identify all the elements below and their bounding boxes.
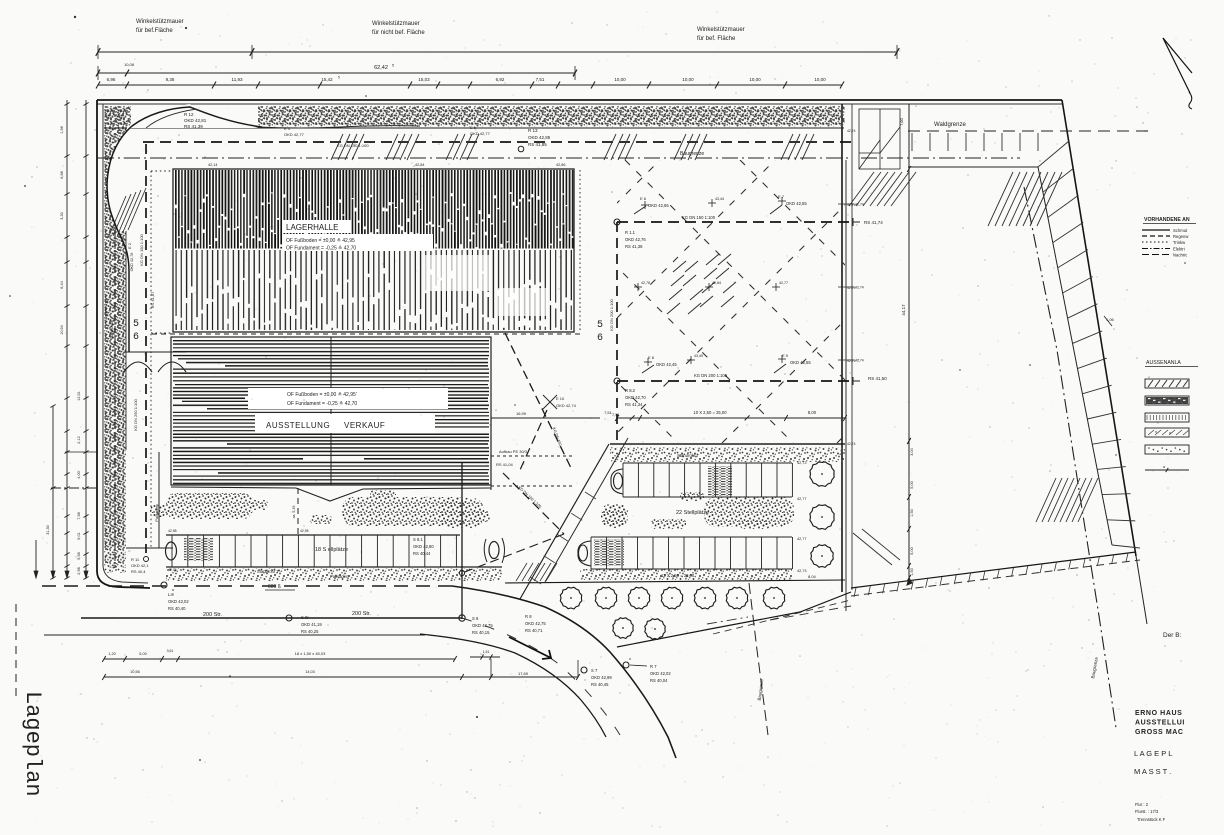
svg-text:OKD 42,74: OKD 42,74 <box>556 403 577 408</box>
svg-text:Palisaden: Palisaden <box>330 574 349 579</box>
svg-text:42,77: 42,77 <box>797 537 807 541</box>
svg-text:3,04: 3,04 <box>910 448 914 455</box>
svg-text:RS 41,38: RS 41,38 <box>625 244 643 249</box>
svg-text:10,00: 10,00 <box>749 77 761 82</box>
svg-text:RS 41,04: RS 41,04 <box>496 462 513 467</box>
svg-text:KG DN 150 1:100: KG DN 150 1:100 <box>139 233 144 265</box>
svg-text:E 2: E 2 <box>127 242 132 249</box>
svg-text:10,00: 10,00 <box>814 77 826 82</box>
svg-text:1,98: 1,98 <box>60 126 64 133</box>
svg-text:42,73: 42,73 <box>797 461 807 465</box>
svg-text:5: 5 <box>338 76 340 80</box>
svg-text:Anlieferung: Anlieferung <box>104 300 108 319</box>
svg-text:7,51: 7,51 <box>536 77 545 82</box>
svg-text:42,74: 42,74 <box>847 203 856 207</box>
svg-text:42,74: 42,74 <box>855 359 864 363</box>
svg-text:Winkelstützmauer: Winkelstützmauer <box>136 19 184 25</box>
svg-text:Trennstück K F: Trennstück K F <box>1137 817 1166 822</box>
svg-text:ca. 5,19: ca. 5,19 <box>292 506 296 519</box>
svg-text:1,20: 1,20 <box>108 652 115 656</box>
svg-text:Regenw: Regenw <box>1173 234 1189 239</box>
svg-text:2,12: 2,12 <box>77 436 81 443</box>
svg-text:S 9r: S 9r <box>301 615 309 620</box>
svg-text:RS 41,34: RS 41,34 <box>625 402 643 407</box>
svg-text:RS 40,25: RS 40,25 <box>301 629 319 634</box>
svg-text:R 11: R 11 <box>131 557 140 562</box>
svg-text:OKD 42,85: OKD 42,85 <box>528 135 551 140</box>
svg-text:8,04: 8,04 <box>808 574 817 579</box>
svg-text:M A S S T .: M A S S T . <box>1134 767 1171 776</box>
svg-text:OF Fundament = -0,25 ≙ 42,70: OF Fundament = -0,25 ≙ 42,70 <box>287 400 357 407</box>
svg-text:44,17: 44,17 <box>901 304 906 316</box>
svg-text:5,00: 5,00 <box>910 547 914 554</box>
svg-text:1,51: 1,51 <box>483 650 490 654</box>
svg-text:62,42: 62,42 <box>374 65 388 71</box>
svg-text:5,00: 5,00 <box>910 481 914 488</box>
svg-text:5: 5 <box>392 64 394 68</box>
svg-text:S 8: S 8 <box>472 616 479 621</box>
svg-text:10 X 2,50 = 25,00: 10 X 2,50 = 25,00 <box>693 410 727 415</box>
svg-text:5,98: 5,98 <box>77 552 81 559</box>
svg-text:LAGERHALLE: LAGERHALLE <box>286 223 338 232</box>
svg-text:Trinkw: Trinkw <box>1173 240 1186 245</box>
svg-text:200 Str.: 200 Str. <box>203 612 222 618</box>
svg-text:5,00: 5,00 <box>139 652 146 656</box>
svg-text:42,74: 42,74 <box>847 359 856 363</box>
svg-text:Flurst. : 17/3: Flurst. : 17/3 <box>1135 809 1159 814</box>
svg-text:R 13: R 13 <box>528 128 538 133</box>
svg-text:10,56: 10,56 <box>130 670 140 674</box>
svg-text:für bef. Fläche: für bef. Fläche <box>697 36 736 42</box>
svg-text:42,86: 42,86 <box>556 163 566 167</box>
svg-text:R 12: R 12 <box>184 112 194 117</box>
svg-text:OKD 42,1: OKD 42,1 <box>131 563 149 568</box>
svg-text:RS 41,39: RS 41,39 <box>184 124 203 129</box>
svg-text:OKD 42,81: OKD 42,81 <box>184 118 207 123</box>
svg-text:10,08: 10,08 <box>124 62 135 67</box>
svg-text:KG DN 200 1:100: KG DN 200 1:100 <box>694 373 728 378</box>
svg-text:OKD 42,65: OKD 42,65 <box>648 203 669 208</box>
svg-text:ERNO HAUS: ERNO HAUS <box>1135 710 1182 717</box>
svg-text:Nachric: Nachric <box>1173 252 1187 257</box>
svg-text:2,98: 2,98 <box>77 567 81 574</box>
svg-text:OKD 42,75: OKD 42,75 <box>525 621 546 626</box>
svg-text:KG DN 250 1:100: KG DN 250 1:100 <box>133 398 138 430</box>
svg-text:KG DN 150 1:100: KG DN 150 1:100 <box>337 143 369 148</box>
svg-text:42,78: 42,78 <box>168 568 177 572</box>
svg-text:43,44: 43,44 <box>715 197 724 201</box>
svg-text:für nicht bef. Fläche: für nicht bef. Fläche <box>372 30 425 36</box>
svg-text:RS 40,4: RS 40,4 <box>131 569 146 574</box>
svg-text:E 7: E 7 <box>778 194 785 199</box>
svg-text:31,30: 31,30 <box>46 525 50 535</box>
svg-text:6,68: 6,68 <box>60 171 64 178</box>
svg-text:42,78: 42,78 <box>641 281 650 285</box>
svg-text:42,74: 42,74 <box>847 442 856 446</box>
svg-text:1,50: 1,50 <box>910 509 914 516</box>
svg-text:RS 41,50: RS 41,50 <box>868 376 887 381</box>
svg-text:Standrohr T: Standrohr T <box>257 569 279 574</box>
svg-text:OKD 41,19: OKD 41,19 <box>301 622 322 627</box>
svg-text:43,49: 43,49 <box>694 354 703 358</box>
svg-text:200 Str.: 200 Str. <box>352 611 371 617</box>
svg-text:L A G E P L: L A G E P L <box>1134 749 1172 758</box>
svg-text:10,94: 10,94 <box>60 325 64 335</box>
svg-text:für bef.Fläche: für bef.Fläche <box>136 28 173 34</box>
svg-text:Standsäule: Standsäule <box>110 321 114 340</box>
svg-text:OKD 42,02: OKD 42,02 <box>650 671 671 676</box>
svg-text:VORHANDENE AN: VORHANDENE AN <box>1144 217 1190 223</box>
svg-text:6: 6 <box>597 333 603 344</box>
svg-text:Standrohr T: Standrohr T <box>677 453 699 458</box>
svg-text:R 8: R 8 <box>525 614 532 619</box>
svg-text:42,84: 42,84 <box>415 163 425 167</box>
svg-text:OKD 42,70: OKD 42,70 <box>625 395 646 400</box>
svg-text:5: 5 <box>133 319 139 330</box>
svg-text:6,92: 6,92 <box>496 77 505 82</box>
svg-text:RS 40,45: RS 40,45 <box>591 682 609 687</box>
svg-text:OKD 42,76: OKD 42,76 <box>625 237 646 242</box>
svg-text:RS 40,15: RS 40,15 <box>472 630 490 635</box>
svg-text:RS 40,71: RS 40,71 <box>525 628 543 633</box>
svg-text:1,06: 1,06 <box>1106 317 1115 322</box>
svg-text:OKD 42,55: OKD 42,55 <box>786 201 807 206</box>
svg-text:GROSS MAC: GROSS MAC <box>1135 729 1184 736</box>
svg-text:OF Fundament = -0,25 ≙ 42,70: OF Fundament = -0,25 ≙ 42,70 <box>286 245 356 252</box>
svg-text:Der B:: Der B: <box>1163 632 1182 639</box>
svg-text:KG DN 150 1:100: KG DN 150 1:100 <box>682 215 716 220</box>
svg-text:OF Fußboden = ±0,00 ≙ 42,95': OF Fußboden = ±0,00 ≙ 42,95' <box>287 391 357 398</box>
svg-text:RS 41,74: RS 41,74 <box>864 220 883 225</box>
svg-text:R 7: R 7 <box>650 664 657 669</box>
svg-text:42,74: 42,74 <box>847 129 856 133</box>
svg-text:11,93: 11,93 <box>232 77 243 82</box>
svg-text:15,42: 15,42 <box>321 77 333 82</box>
svg-text:14,03: 14,03 <box>305 670 315 674</box>
svg-text:6,44: 6,44 <box>60 281 64 288</box>
svg-text:AUSSENANLA: AUSSENANLA <box>1146 360 1181 366</box>
svg-text:S 7: S 7 <box>591 668 598 673</box>
svg-text:OKD 42,80: OKD 42,80 <box>413 544 434 549</box>
svg-text:Lageplan: Lageplan <box>20 691 45 797</box>
svg-text:OKD 42,45: OKD 42,45 <box>656 362 677 367</box>
svg-text:4,00: 4,00 <box>77 471 81 478</box>
svg-text:1,50: 1,50 <box>910 568 914 575</box>
svg-text:OKD 42,76: OKD 42,76 <box>130 253 134 272</box>
svg-text:42,98: 42,98 <box>168 529 177 533</box>
svg-text:7,51: 7,51 <box>604 410 613 415</box>
svg-text:S 8.1: S 8.1 <box>413 537 423 542</box>
svg-text:15,03: 15,03 <box>418 77 430 82</box>
svg-text:42,77: 42,77 <box>797 497 807 501</box>
svg-text:600 ß: 600 ß <box>268 584 281 590</box>
svg-text:8,00: 8,00 <box>808 410 817 415</box>
svg-text:3,30: 3,30 <box>60 212 64 219</box>
svg-text:AUSSTELLUNG: AUSSTELLUNG <box>266 421 330 430</box>
svg-text:16,99: 16,99 <box>516 411 527 416</box>
svg-text:VERKAUF: VERKAUF <box>344 421 385 430</box>
svg-text:E 10: E 10 <box>556 396 565 401</box>
svg-text:7,98: 7,98 <box>77 512 81 519</box>
svg-text:RS 41,87: RS 41,87 <box>150 291 155 308</box>
svg-text:42,77: 42,77 <box>779 281 788 285</box>
svg-text:KG DN 200 1:100: KG DN 200 1:100 <box>609 298 614 330</box>
svg-text:E 9: E 9 <box>782 353 789 358</box>
svg-text:E 6: E 6 <box>640 196 647 201</box>
svg-text:Aufbau PE 30/3: Aufbau PE 30/3 <box>499 449 528 454</box>
svg-text:6,96: 6,96 <box>107 77 116 82</box>
svg-text:42,74: 42,74 <box>847 286 856 290</box>
svg-text:R 1.1: R 1.1 <box>625 230 636 235</box>
svg-text:5: 5 <box>597 320 603 331</box>
svg-text:Winkelstützmauer: Winkelstützmauer <box>372 21 420 27</box>
svg-text:10,00: 10,00 <box>614 77 626 82</box>
svg-text:a: a <box>1163 465 1165 469</box>
svg-text:E 4: E 4 <box>284 126 291 131</box>
svg-text:RS 40,40: RS 40,40 <box>168 606 186 611</box>
svg-text:R 8.2: R 8.2 <box>625 388 636 393</box>
svg-text:OKD 42,55: OKD 42,55 <box>790 360 811 365</box>
svg-text:RS 41,85: RS 41,85 <box>528 142 547 147</box>
svg-text:3,61: 3,61 <box>167 649 174 653</box>
svg-text:12 X 2,50 = 30,00: 12 X 2,50 = 30,00 <box>661 573 695 578</box>
svg-text:42,14: 42,14 <box>208 163 218 167</box>
svg-text:9,01: 9,01 <box>77 532 81 539</box>
svg-text:Flur : 2: Flur : 2 <box>1135 802 1149 807</box>
svg-text:OKD 42,77: OKD 42,77 <box>284 132 305 137</box>
svg-text:OKD 42,02: OKD 42,02 <box>168 599 189 604</box>
svg-text:E 8: E 8 <box>648 355 655 360</box>
svg-text:17,69: 17,69 <box>518 671 529 676</box>
svg-text:Elektri: Elektri <box>1173 246 1185 251</box>
svg-text:AUSSTELLUI: AUSSTELLUI <box>1135 720 1185 727</box>
svg-text:42,84: 42,84 <box>712 281 721 285</box>
svg-text:42,74: 42,74 <box>855 286 864 290</box>
svg-text:RS 40,04: RS 40,04 <box>650 678 668 683</box>
svg-text:42,73: 42,73 <box>797 569 807 573</box>
svg-text:9,36: 9,36 <box>166 77 175 82</box>
svg-text:OKD 42,77: OKD 42,77 <box>470 131 491 136</box>
svg-text:RS 40,44: RS 40,44 <box>413 551 431 556</box>
svg-text:E 5: E 5 <box>470 125 477 130</box>
svg-text:18 S ellplätze: 18 S ellplätze <box>315 547 348 553</box>
svg-text:OKD 42,99: OKD 42,99 <box>591 675 612 680</box>
svg-text:Winkelstützmauer: Winkelstützmauer <box>697 27 745 33</box>
svg-text:Waldgrenze: Waldgrenze <box>934 122 966 128</box>
svg-text:6: 6 <box>133 332 139 343</box>
svg-text:42,95: 42,95 <box>300 529 309 533</box>
svg-text:18 x 1,50 x 45,03: 18 x 1,50 x 45,03 <box>295 651 326 656</box>
svg-text:12,51: 12,51 <box>77 391 81 401</box>
svg-text:Schmut: Schmut <box>1173 228 1188 233</box>
svg-text:10,00: 10,00 <box>682 77 694 82</box>
